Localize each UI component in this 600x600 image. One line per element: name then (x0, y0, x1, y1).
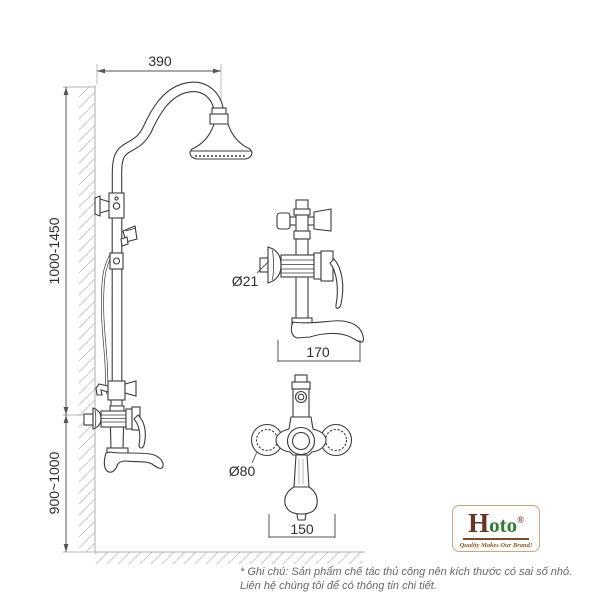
logo-tagline: Quality Makes Our Brand! (453, 542, 539, 549)
shower-column (84, 87, 252, 472)
registered-trademark-icon: ® (517, 515, 524, 525)
dim-lower-height-label: 900~1000 (46, 451, 62, 514)
wall-hatch (79, 86, 95, 552)
logo-rest: oto (489, 513, 517, 537)
dimension-lower-height: 900~1000 (46, 415, 68, 552)
footnote: * Ghi chú: Sản phẩm chế tác thủ công nên… (240, 566, 590, 593)
label-handle-diameter: Ø80 (229, 452, 257, 479)
shower-pole (112, 196, 122, 382)
mixer-lever-side (330, 259, 343, 308)
mixer-lever (134, 415, 145, 448)
dim-top-width-label: 390 (148, 53, 172, 69)
dim-valve-depth-label: 170 (306, 344, 330, 360)
logo-wordmark: Hoto® (453, 507, 539, 541)
hand-shower-holder (121, 226, 137, 246)
spout-bell (285, 487, 317, 514)
dim-handle-diameter-label: Ø80 (229, 463, 256, 479)
dim-valve-width-label: 150 (290, 521, 314, 537)
arrow-up-icon (64, 87, 69, 95)
mixer-spout (104, 452, 163, 472)
center-rosette (288, 428, 315, 455)
arrow-down-icon (64, 544, 69, 552)
diverter-tee (96, 381, 136, 406)
hoto-logo: Hoto® Quality Makes Our Brand! (452, 505, 540, 552)
footnote-line2: Liên hệ chúng tôi để có thông tin chi ti… (240, 580, 590, 594)
dimension-top-width: 390 (97, 53, 221, 73)
arrow-down-icon (64, 407, 69, 415)
slider-collar (110, 253, 123, 269)
arrow-up-icon (64, 415, 69, 423)
side-view-detail (260, 200, 363, 342)
spout-side (291, 321, 363, 342)
arrow-left-icon (97, 69, 105, 74)
dim-upper-height-label: 1000-1450 (46, 217, 62, 284)
wall-bracket (95, 193, 124, 218)
floor-hatch (95, 552, 363, 564)
footnote-line1: * Ghi chú: Sản phẩm chế tác thủ công nên… (240, 566, 590, 580)
rain-shower-head (190, 108, 252, 159)
logo-initial: H (468, 508, 489, 538)
front-view-detail (252, 375, 352, 520)
dim-valve-diameter-label: Ø21 (232, 273, 259, 289)
dimension-upper-height: 1000-1450 (46, 87, 68, 415)
arrow-right-icon (213, 69, 221, 74)
dimension-valve-depth: 170 (278, 340, 360, 362)
